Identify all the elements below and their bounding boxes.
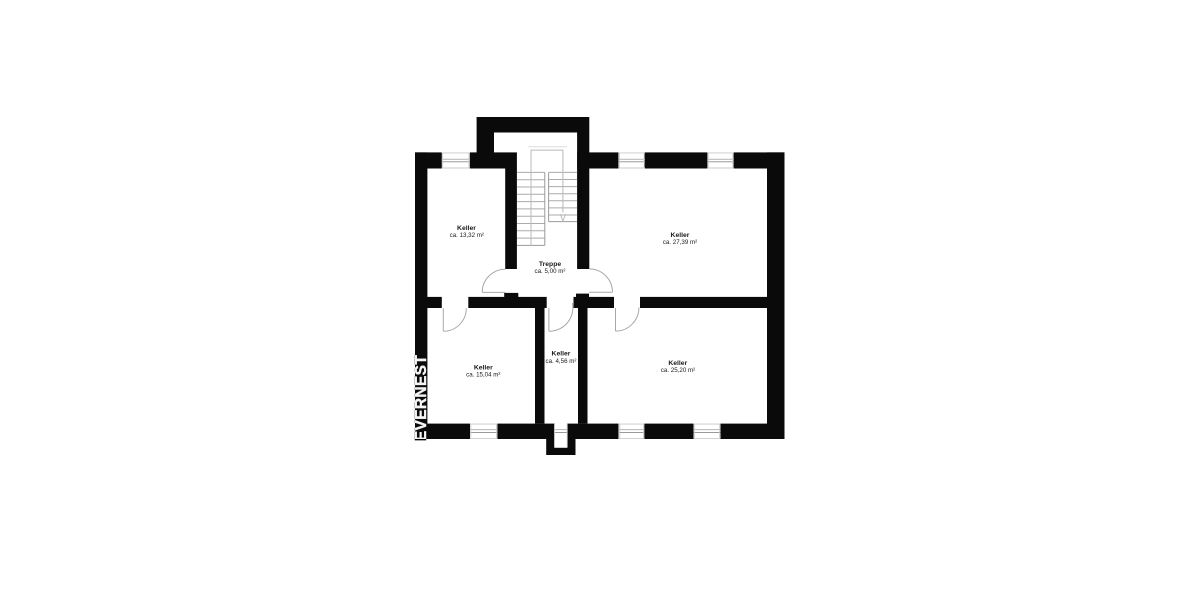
svg-text:ca. 25,20 m²: ca. 25,20 m² [661,367,695,374]
svg-text:ca. 4,56 m²: ca. 4,56 m² [546,358,577,365]
svg-text:ca. 5,00 m²: ca. 5,00 m² [535,268,566,275]
svg-text:ca. 27,39 m²: ca. 27,39 m² [663,239,697,246]
svg-text:ca. 15,04 m²: ca. 15,04 m² [466,372,500,379]
svg-text:Keller: Keller [474,365,493,372]
svg-text:Keller: Keller [552,351,571,358]
svg-text:ca. 13,32 m²: ca. 13,32 m² [450,232,484,239]
svg-text:Keller: Keller [457,225,476,232]
